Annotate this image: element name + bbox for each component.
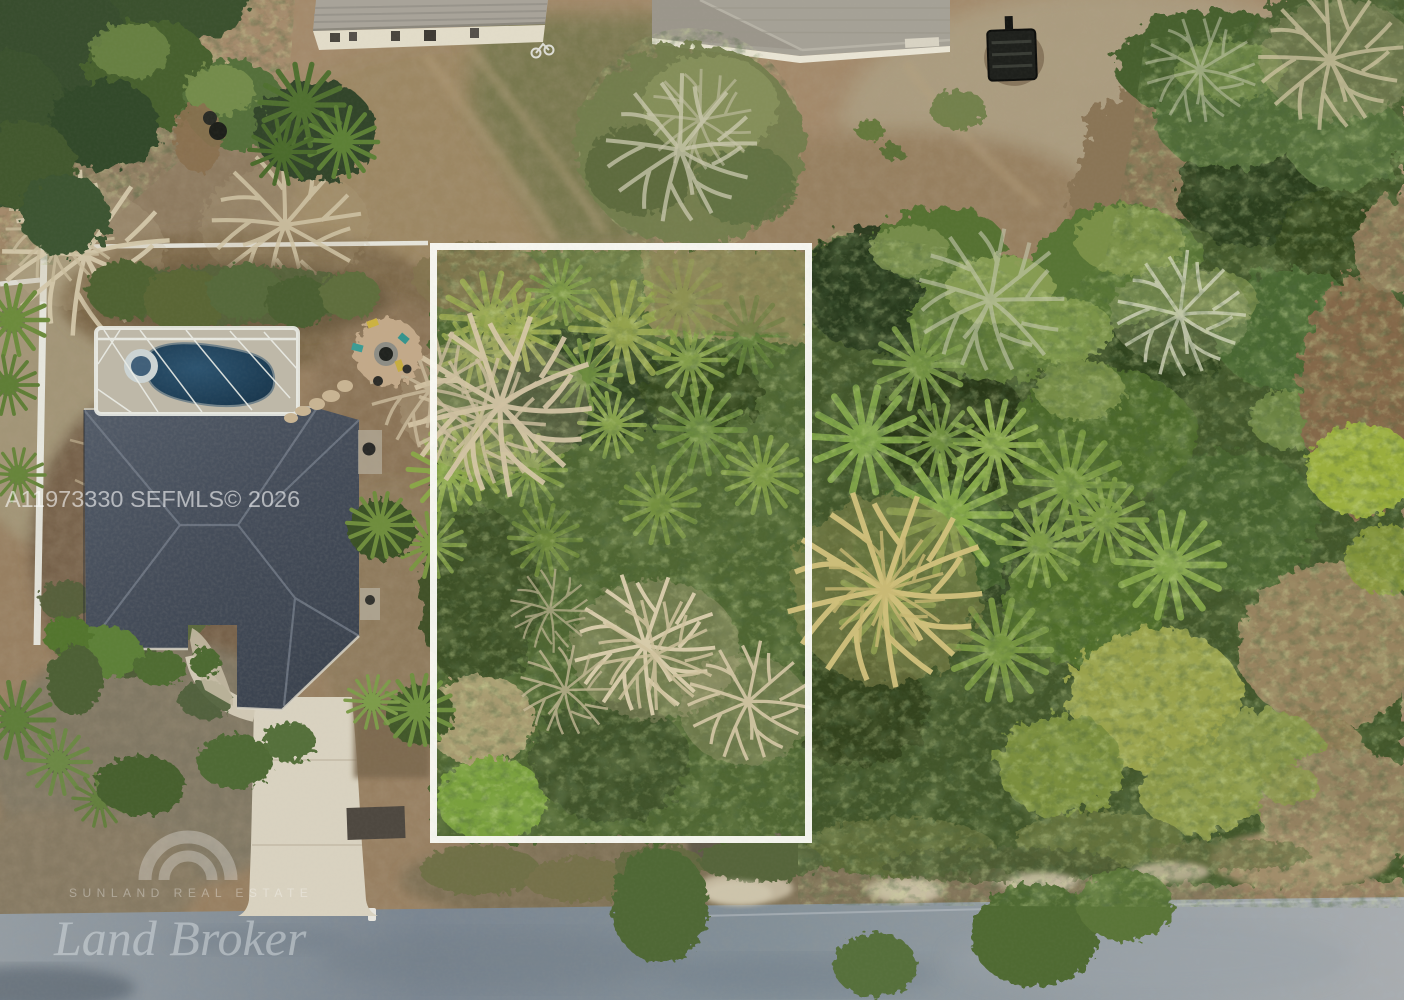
svg-text:A11973330 SEFMLS© 2026: A11973330 SEFMLS© 2026 — [5, 486, 300, 512]
svg-text:Land Broker: Land Broker — [53, 910, 307, 966]
svg-text:SUNLAND REAL ESTATE: SUNLAND REAL ESTATE — [69, 886, 313, 900]
